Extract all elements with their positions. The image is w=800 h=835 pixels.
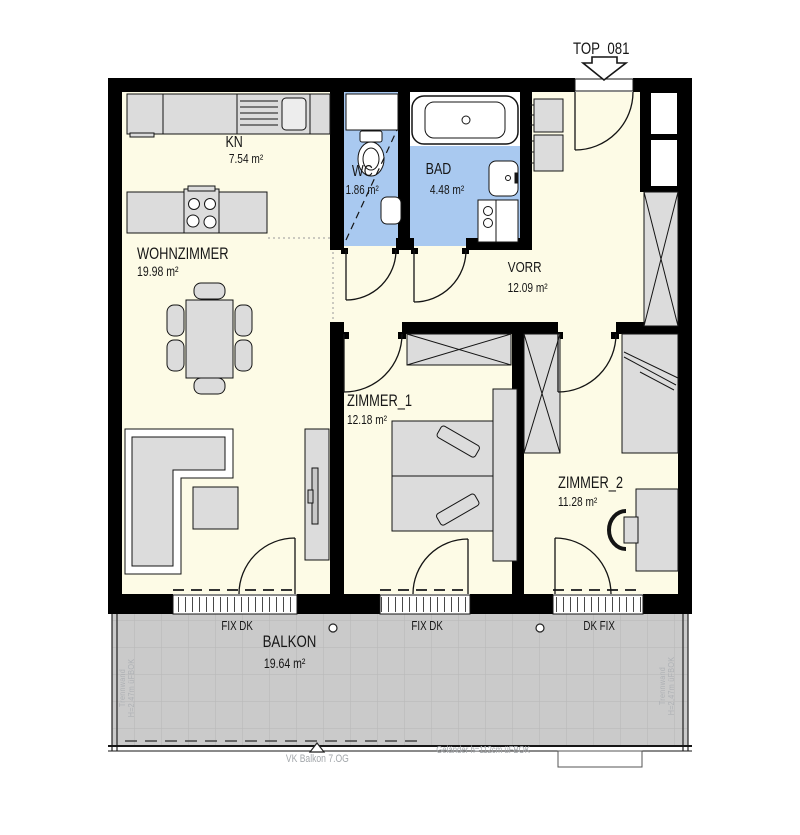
entrance-arrow-icon <box>583 57 626 80</box>
wall-bottom-1 <box>108 594 173 614</box>
neighbor-balcony-outline <box>558 751 642 767</box>
balcony-drain-right <box>536 624 544 632</box>
wall-bottom-3 <box>470 594 553 614</box>
wall-wz-z1 <box>330 322 344 594</box>
balcony-grid <box>112 614 688 745</box>
kitchen-island <box>127 186 267 233</box>
floor-plan-drawing <box>0 0 800 835</box>
bed-headboard <box>493 389 517 561</box>
jamb <box>341 248 348 254</box>
single-bed <box>622 334 678 453</box>
coffee-table <box>193 487 238 529</box>
chair <box>194 378 225 394</box>
shaft-opening-1 <box>651 93 677 134</box>
faucet <box>506 176 511 181</box>
bathtub-drain <box>462 116 470 124</box>
jamb <box>611 332 619 339</box>
wc-sink <box>381 197 401 224</box>
shaft-opening-2 <box>651 140 677 186</box>
desk-chair <box>624 517 638 543</box>
chair <box>235 305 252 336</box>
wall-bottom-4 <box>643 594 692 614</box>
wall-bad-vorr <box>520 92 532 250</box>
chair <box>194 283 225 299</box>
shelf <box>534 135 563 171</box>
kitchen-sink <box>282 98 306 130</box>
toilet-tank <box>360 131 382 142</box>
wall-bottom-2 <box>297 594 380 614</box>
wall-left <box>108 78 122 614</box>
wc-shaft-box <box>346 94 398 130</box>
dining-table <box>186 300 233 378</box>
wall-e-seg2 <box>402 322 558 334</box>
chair <box>167 305 184 336</box>
floor-plan-canvas: { "title": "TOP_081", "rooms": { "kn": {… <box>0 0 800 835</box>
kitchen-counter <box>127 94 330 137</box>
desk <box>636 489 678 571</box>
chair <box>235 340 252 371</box>
balcony-drain-left <box>329 624 337 632</box>
washbasin <box>489 161 518 196</box>
balcony-area <box>108 614 692 767</box>
shelf <box>534 99 563 132</box>
chair <box>167 340 184 371</box>
jamb <box>341 332 349 339</box>
wall-top-left <box>108 78 575 92</box>
wall-wz-wc <box>330 92 344 250</box>
wall-wc-bad <box>398 92 410 250</box>
